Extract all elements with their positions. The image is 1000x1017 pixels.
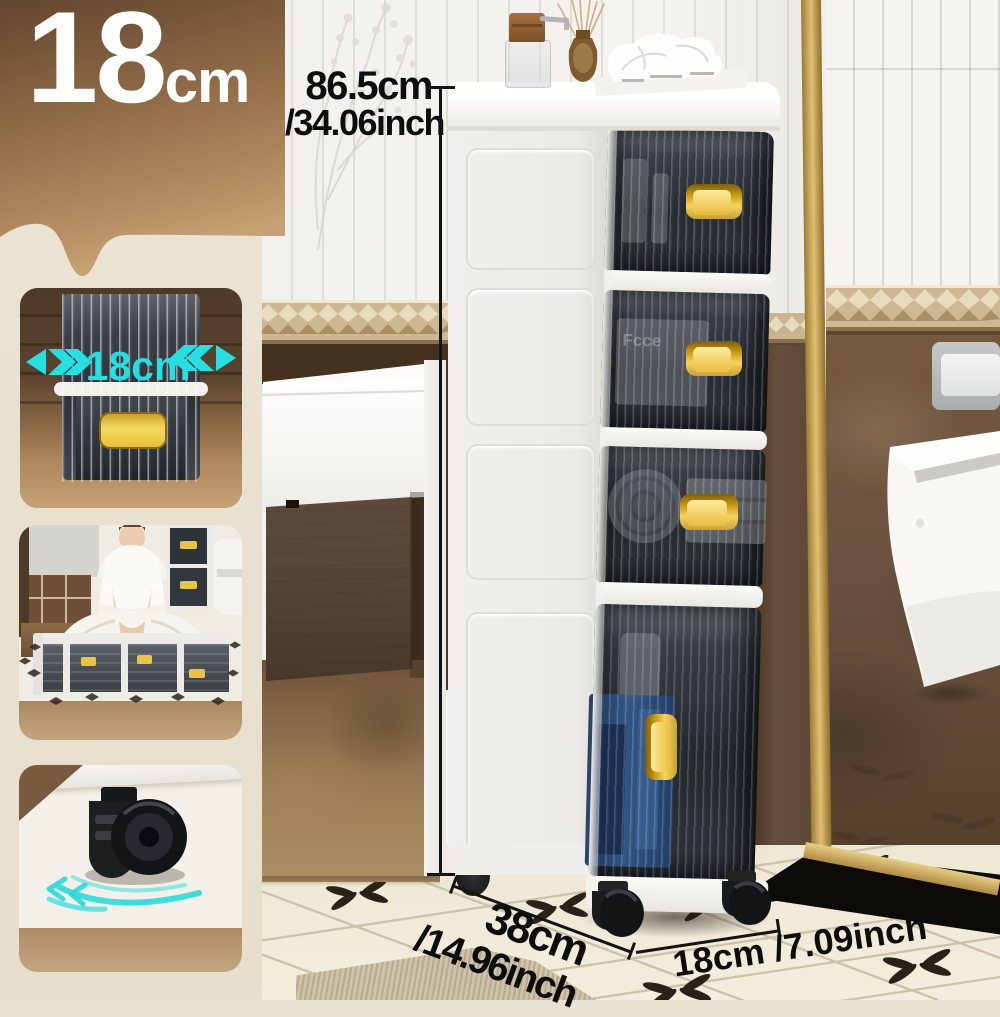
svg-text:18cm: 18cm [86,343,191,389]
